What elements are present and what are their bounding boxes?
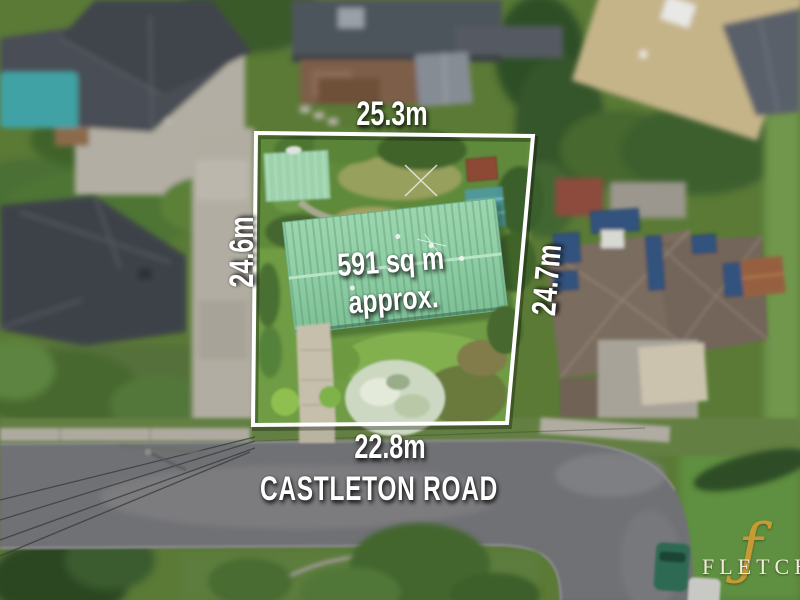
garden-shed-roof (263, 144, 330, 201)
agency-wordmark: FLETCHERS (702, 554, 800, 580)
area-label: 591 sq m approx. (336, 240, 448, 323)
area-line1: 591 sq m (336, 240, 445, 283)
swimming-pool (0, 72, 78, 128)
street-name-label: CASTLETON ROAD (260, 472, 498, 506)
dimension-label-left: 24.6m (225, 216, 259, 287)
agency-logo: ƒ FLETCHERS (700, 540, 800, 600)
parked-car (653, 542, 690, 592)
red-shed-roof (466, 157, 498, 182)
rooftop-ac-unit (601, 230, 624, 248)
driveway (296, 323, 336, 424)
dimension-label-right: 24.7m (527, 243, 567, 317)
dimension-label-bottom: 22.8m (354, 430, 425, 464)
chimney (138, 268, 152, 280)
dimension-label-top: 25.3m (356, 97, 427, 131)
area-line2: approx. (347, 278, 439, 320)
chimney (338, 8, 364, 28)
aerial-property-photo: 25.3m 24.6m 24.7m 22.8m 591 sq m approx.… (0, 0, 800, 600)
